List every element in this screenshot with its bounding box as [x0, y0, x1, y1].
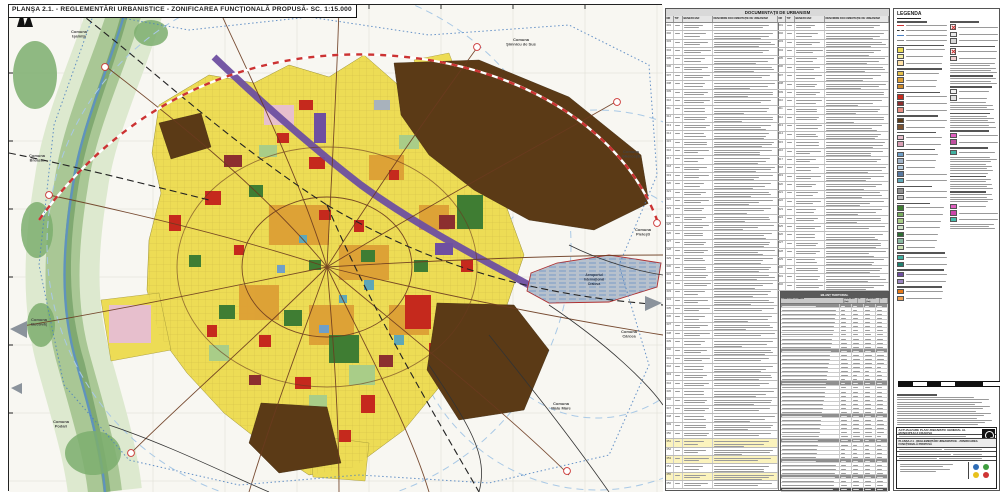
designer-logo: [968, 462, 995, 480]
legend-item: [897, 272, 947, 277]
doc-row: 021: [778, 191, 889, 199]
legend-column-2: [950, 19, 998, 231]
doc-row: 003: [778, 40, 889, 48]
legend-item: [950, 95, 998, 100]
legend-paragraph: [950, 224, 998, 229]
legend-item: [897, 178, 947, 183]
scale-bar: [898, 381, 1000, 387]
color-swatch: [897, 171, 904, 176]
svg-text:Aeroportul: Aeroportul: [585, 273, 602, 277]
legend-item: [897, 101, 947, 106]
color-swatch: [897, 232, 904, 237]
scale-segment: [927, 382, 941, 386]
legend-item: [897, 60, 947, 65]
line-symbol: [897, 30, 904, 31]
doc-row: 012: [778, 115, 889, 123]
doc-row: 015: [666, 140, 778, 148]
legend-item: [897, 71, 947, 76]
crossed-symbol: [950, 48, 956, 54]
legend-paragraph: [950, 116, 998, 128]
color-swatch: [950, 139, 957, 144]
legend-paragraph: [950, 194, 998, 202]
color-swatch: [897, 101, 904, 106]
commune-label: Gherceşti: [622, 154, 640, 159]
legend-item: [897, 289, 947, 294]
color-swatch: [897, 118, 904, 123]
doc-row: 041: [666, 356, 778, 364]
legend-item: [897, 94, 947, 99]
doc-row: 001: [778, 23, 889, 31]
color-swatch: [897, 212, 904, 217]
docs-col-header: TIP: [674, 16, 683, 22]
doc-row: 055: [666, 473, 778, 481]
color-swatch: [897, 107, 904, 112]
docs-right-header: NRTIPBENEFICIARDENUMIRE DOCUMENTAŢIE DE …: [778, 16, 889, 23]
line-symbol: [897, 25, 904, 26]
legend-item: [897, 238, 947, 243]
color-swatch: [897, 84, 904, 89]
plate-title: PLANŞA 2.1. - REGLEMENTĂRI URBANISTICE -…: [9, 5, 357, 18]
logo-dot: [983, 472, 989, 478]
legend-item: [897, 279, 947, 284]
legend-item: [950, 210, 998, 215]
legend-title: LEGENDA: [897, 11, 921, 19]
doc-row: 037: [666, 323, 778, 331]
doc-row: 025: [778, 224, 889, 232]
legend-item: [897, 158, 947, 163]
notes-block: [897, 393, 996, 427]
commune-label: Işalniţa: [72, 34, 87, 39]
color-swatch: [897, 272, 904, 277]
legend-item: [897, 77, 947, 82]
doc-row: 029: [778, 258, 889, 266]
doc-row: 022: [666, 198, 778, 206]
doc-row: 004: [666, 48, 778, 56]
doc-row: 042: [666, 364, 778, 372]
doc-row: 002: [778, 31, 889, 39]
legend-item: [897, 171, 947, 176]
legend-item: [950, 217, 998, 222]
doc-row: 026: [666, 231, 778, 239]
legend-item: [950, 139, 998, 144]
doc-row: 035: [666, 306, 778, 314]
doc-row: 032: [666, 281, 778, 289]
legend-item: [897, 34, 947, 38]
doc-row: 019: [778, 174, 889, 182]
doc-row: 007: [778, 73, 889, 81]
doc-row: 006: [666, 65, 778, 73]
doc-row: 012: [666, 115, 778, 123]
doc-row: 014: [666, 131, 778, 139]
doc-row: 028: [666, 248, 778, 256]
legend-item: [897, 188, 947, 193]
scale-segment: [983, 382, 1000, 386]
balance-row: [781, 488, 888, 492]
legend-item: [897, 165, 947, 170]
doc-row: 045: [666, 389, 778, 397]
title-block: ACTUALIZARE PLAN URBANISTIC GENERAL AL M…: [896, 427, 997, 489]
legend-item: [897, 24, 947, 28]
doc-row: 028: [778, 249, 889, 257]
doc-row: 023: [666, 206, 778, 214]
doc-row: 051: [666, 439, 778, 447]
balance-col: PROPUS (ha): [866, 298, 880, 303]
legend-column-1: [897, 19, 947, 302]
doc-row: 011: [666, 106, 778, 114]
doc-row: 043: [666, 373, 778, 381]
legend-item: [950, 133, 998, 138]
doc-row: 036: [666, 314, 778, 322]
doc-row: 027: [666, 240, 778, 248]
commune-label: Malu Mare: [551, 406, 571, 411]
balance-col: EXISTENT (ha): [844, 298, 858, 303]
svg-text:Internaţional: Internaţional: [584, 278, 604, 282]
docs-right-rows: 0010020030040050060070080090100110120130…: [778, 23, 889, 291]
logo-dot: [973, 464, 979, 470]
color-swatch: [897, 245, 904, 250]
doc-row: 038: [666, 331, 778, 339]
doc-row: 016: [778, 149, 889, 157]
legend-item: [897, 29, 947, 33]
color-swatch: [897, 124, 904, 129]
commune-label: Şimnicu de Sus: [506, 42, 537, 47]
doc-row: 009: [778, 90, 889, 98]
legend-item: [897, 135, 947, 140]
doc-row: 013: [778, 124, 889, 132]
scale-segment: [899, 382, 913, 386]
doc-row: 031: [666, 273, 778, 281]
docs-left-rows: 0010020030040050060070080090100110120130…: [666, 23, 779, 490]
doc-row: 056: [666, 481, 778, 489]
doc-row: 013: [666, 123, 778, 131]
doc-row: 027: [778, 241, 889, 249]
color-swatch: [950, 217, 957, 222]
map-panel: Aeroportul Internaţional Craiova: [8, 4, 662, 491]
color-swatch: [950, 95, 957, 100]
doc-row: 032: [778, 283, 889, 291]
legend-item: [950, 89, 998, 94]
legend-item: [950, 32, 998, 37]
legend-panel: LEGENDA ACTUALIZARE PLAN URBANISTIC GENE…: [893, 8, 1000, 491]
territorial-balance-table: BILANŢ TERITORIAL ZONA FUNCŢIONALĂEXISTE…: [780, 291, 889, 490]
legend-item: [897, 118, 947, 123]
color-swatch: [897, 178, 904, 183]
doc-row: 052: [666, 448, 778, 456]
legend-item: [897, 296, 947, 301]
doc-row: 049: [666, 423, 778, 431]
commune-label: Breasta: [30, 158, 45, 163]
logo-dot: [973, 472, 979, 478]
color-swatch: [950, 210, 957, 215]
docs-left-header: NRTIPBENEFICIARDENUMIRE DOCUMENTAŢIE DE …: [666, 16, 778, 23]
legend-item: [897, 124, 947, 129]
legend-paragraph: [950, 102, 998, 110]
legend-item: [950, 56, 998, 61]
doc-row: 011: [778, 107, 889, 115]
doc-row: 044: [666, 381, 778, 389]
commune-label: Podari: [55, 424, 67, 429]
color-swatch: [897, 141, 904, 146]
color-swatch: [897, 135, 904, 140]
doc-row: 019: [666, 173, 778, 181]
doc-row: 034: [666, 298, 778, 306]
color-swatch: [950, 89, 957, 94]
doc-row: 023: [778, 207, 889, 215]
scale-segment: [913, 382, 927, 386]
doc-row: 047: [666, 406, 778, 414]
docs-col-header: DENUMIRE DOCUMENTAŢIE DE URBANISM: [713, 16, 778, 22]
project-title: ACTUALIZARE PLAN URBANISTIC GENERAL AL M…: [897, 428, 996, 435]
doc-row: 022: [778, 199, 889, 207]
plan-sheet: Aeroportul Internaţional Craiova: [0, 0, 1000, 495]
docs-col-header: DENUMIRE DOCUMENTAŢIE DE URBANISM: [825, 16, 889, 22]
doc-row: 006: [778, 65, 889, 73]
commune-label: Bucovăţ: [31, 322, 47, 327]
doc-row: 002: [666, 31, 778, 39]
doc-row: 029: [666, 256, 778, 264]
doc-row: 014: [778, 132, 889, 140]
legend-item: [897, 232, 947, 237]
doc-row: 026: [778, 232, 889, 240]
color-swatch: [897, 94, 904, 99]
color-swatch: [950, 56, 957, 61]
scale-segment: [941, 382, 955, 386]
zoning-map: Aeroportul Internaţional Craiova: [9, 5, 663, 492]
legend-item: [950, 48, 998, 54]
balance-rows: [781, 304, 888, 492]
doc-row: 015: [778, 140, 889, 148]
legend-item: [897, 152, 947, 157]
doc-row: 017: [666, 156, 778, 164]
color-swatch: [897, 152, 904, 157]
doc-row: 003: [666, 40, 778, 48]
legend-item: [897, 84, 947, 89]
doc-row: 053: [666, 456, 778, 464]
legend-item: [950, 38, 998, 43]
legend-item: [897, 39, 947, 43]
doc-row: 025: [666, 223, 778, 231]
doc-row: 018: [778, 165, 889, 173]
doc-row: 020: [778, 182, 889, 190]
color-swatch: [950, 150, 957, 155]
doc-row: 007: [666, 73, 778, 81]
legend-item: [897, 255, 947, 260]
legend-paragraph: [950, 179, 998, 189]
commune-label: Pieleşti: [636, 232, 650, 237]
legend-item: [897, 262, 947, 267]
doc-row: 017: [778, 157, 889, 165]
legend-item: [897, 225, 947, 230]
line-symbol: [897, 35, 904, 36]
doc-row: 020: [666, 181, 778, 189]
color-swatch: [897, 225, 904, 230]
color-swatch: [897, 54, 904, 59]
legend-item: [897, 54, 947, 59]
legend-item: [897, 245, 947, 250]
commune-label: Cârcea: [622, 334, 636, 339]
legend-item: [897, 212, 947, 217]
doc-row: 040: [666, 348, 778, 356]
color-swatch: [897, 262, 904, 267]
doc-row: 048: [666, 414, 778, 422]
doc-row: 018: [666, 165, 778, 173]
doc-row: 054: [666, 464, 778, 472]
doc-row: 024: [666, 215, 778, 223]
doc-row: 033: [666, 290, 778, 298]
doc-row: 046: [666, 398, 778, 406]
svg-text:Craiova: Craiova: [588, 282, 601, 286]
doc-row: 050: [666, 431, 778, 439]
color-swatch: [950, 133, 957, 138]
color-swatch: [897, 279, 904, 284]
docs-col-header: TIP: [786, 16, 795, 22]
logo-dot: [983, 464, 989, 470]
color-swatch: [897, 255, 904, 260]
legend-paragraph: [950, 157, 998, 174]
legend-item: [950, 204, 998, 209]
color-swatch: [897, 47, 904, 52]
line-symbol: [897, 40, 904, 41]
color-swatch: [897, 188, 904, 193]
legend-item: [897, 218, 947, 223]
color-swatch: [897, 205, 904, 210]
color-swatch: [897, 165, 904, 170]
title-block-bottom: [897, 461, 996, 480]
color-swatch: [950, 204, 957, 209]
doc-row: 024: [778, 216, 889, 224]
scale-segment: [955, 382, 983, 386]
docs-col-header: NR: [778, 16, 786, 22]
doc-row: 031: [778, 274, 889, 282]
color-swatch: [950, 32, 957, 37]
color-swatch: [897, 60, 904, 65]
doc-row: 030: [666, 265, 778, 273]
doc-row: 001: [666, 23, 778, 31]
doc-row: 009: [666, 90, 778, 98]
docs-col-header: BENEFICIAR: [795, 16, 825, 22]
docs-col-header: NR: [666, 16, 674, 22]
legend-item: [897, 107, 947, 112]
doc-row: 008: [666, 81, 778, 89]
signatures-cell: [899, 462, 968, 480]
balance-col: %: [858, 298, 866, 303]
doc-row: 005: [778, 57, 889, 65]
legend-item: [950, 150, 998, 155]
color-swatch: [897, 71, 904, 76]
sheet-title: PLANŞA 2.1 - REGLEMENTĂRI URBANISTICE - …: [897, 439, 996, 448]
doc-row: 008: [778, 82, 889, 90]
doc-row: 005: [666, 56, 778, 64]
color-swatch: [950, 38, 957, 43]
color-swatch: [897, 238, 904, 243]
urbanism-docs-panel: DOCUMENTAŢII DE URBANISM NRTIPBENEFICIAR…: [665, 8, 890, 491]
doc-row: 010: [778, 98, 889, 106]
color-swatch: [897, 77, 904, 82]
legend-item: [897, 205, 947, 210]
doc-row: 021: [666, 190, 778, 198]
color-swatch: [897, 195, 904, 200]
color-swatch: [897, 296, 904, 301]
color-swatch: [897, 218, 904, 223]
color-swatch: [897, 158, 904, 163]
color-swatch: [897, 289, 904, 294]
docs-col-header: BENEFICIAR: [683, 16, 713, 22]
legend-item: [897, 47, 947, 52]
legend-paragraph: [950, 78, 998, 83]
legend-item: [897, 195, 947, 200]
legend-paragraph: [950, 63, 998, 73]
balance-col: %: [880, 298, 888, 303]
doc-row: 004: [778, 48, 889, 56]
doc-row: 016: [666, 148, 778, 156]
legend-item: [950, 24, 998, 30]
doc-row: 039: [666, 339, 778, 347]
legend-item: [897, 141, 947, 146]
doc-row: 030: [778, 266, 889, 274]
crossed-symbol: [950, 24, 956, 30]
doc-row: 010: [666, 98, 778, 106]
balance-col: ZONA FUNCŢIONALĂ: [781, 298, 844, 303]
